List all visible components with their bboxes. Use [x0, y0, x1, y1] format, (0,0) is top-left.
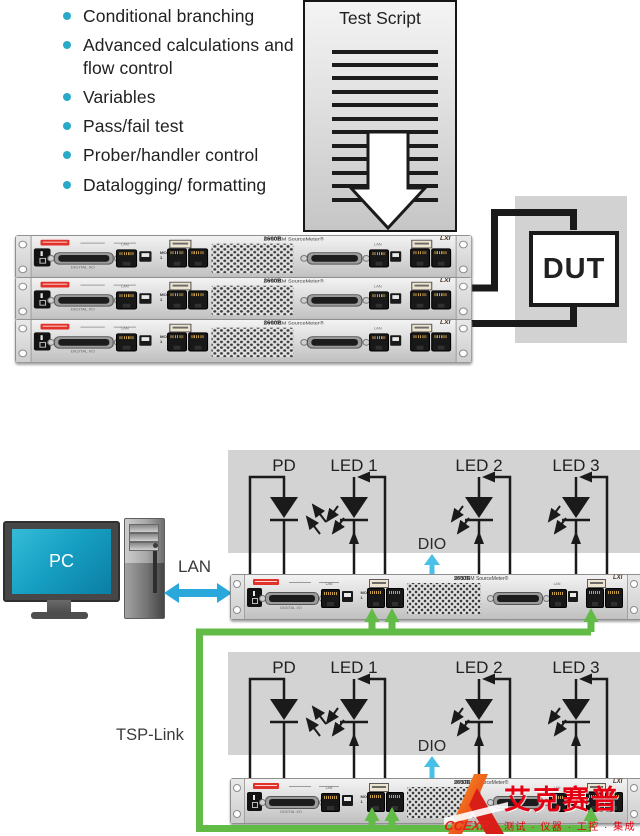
usb-a-port [169, 324, 191, 333]
warning-sticker [41, 240, 70, 246]
usb-a-port [411, 282, 432, 291]
svg-text:CCEXP: CCEXP [444, 818, 491, 833]
tsp-link-port-2 [188, 248, 208, 267]
rack-ear-right [456, 236, 472, 278]
ventilation-grid [211, 244, 293, 274]
digital-io-label: DIGITAL I/O [49, 307, 116, 312]
lan-port-label: LAN [367, 327, 389, 331]
watermark-text: 艾克赛普 测试 · 仪器 · 工控 · 集成 www.accexp.net [504, 778, 640, 836]
dut-box: DUT [529, 231, 619, 307]
usb-b-port [390, 251, 401, 262]
screw-hole [18, 283, 27, 291]
warning-sticker [41, 282, 70, 288]
tsp-link-port-4 [431, 290, 451, 309]
digital-io-connector [54, 252, 114, 264]
panel-microtext [80, 243, 104, 244]
watermark-tagline: 测试 · 仪器 · 工控 · 集成 [504, 818, 640, 833]
lan-port-label: LAN [114, 243, 136, 247]
screw-hole [459, 325, 468, 333]
usb-b-port [139, 251, 151, 262]
ventilation-grid [211, 328, 293, 358]
lan-port [369, 249, 389, 267]
usb-b-port [139, 335, 151, 346]
tsp-link-label: TSP-Link [116, 726, 184, 745]
lan-port-label: LAN [114, 327, 136, 331]
lan-port [116, 333, 137, 351]
lan-port [369, 291, 389, 309]
lxi-logo: LXI [440, 320, 450, 326]
rack-ear-right [456, 278, 472, 320]
digital-io-connector [54, 294, 114, 306]
rack-ear-left [16, 236, 32, 278]
screw-hole [459, 283, 468, 291]
accexp-logo-icon: CCEXP [444, 772, 510, 834]
mod-number: 1 [160, 339, 162, 344]
tsp-link-port-1 [167, 248, 187, 267]
rack-ear-left [16, 320, 32, 362]
sourcemeter-front-panel: DIGITAL I/O LAN MOD 1 2600B SYSTEM Sourc… [15, 235, 472, 279]
screw-hole [18, 266, 27, 274]
screw-hole [18, 325, 27, 333]
usb-a-port [411, 240, 432, 249]
rack-unit-1: DIGITAL I/O LAN MOD 1 2600B SYSTEM Sourc… [15, 235, 470, 277]
tsp-link-port-3 [410, 290, 430, 309]
usb-a-port [169, 282, 191, 291]
tsp-link-port-2 [188, 290, 208, 309]
lan-port [116, 291, 137, 309]
warning-sticker [41, 324, 70, 330]
lan-port-label: LAN [367, 243, 389, 247]
digital-io-connector [307, 294, 362, 306]
digital-io-connector [307, 336, 362, 348]
tsp-link-port-1 [167, 332, 187, 351]
screw-hole [18, 308, 27, 316]
tsp-link-port-4 [431, 332, 451, 351]
sourcemeter-front-panel: DIGITAL I/O LAN MOD 1 2600B SYSTEM Sourc… [15, 277, 472, 321]
digital-io-label: DIGITAL I/O [49, 265, 116, 270]
rack-ear-right [456, 320, 472, 362]
rack-unit-3: DIGITAL I/O LAN MOD 1 2600B SYSTEM Sourc… [15, 319, 470, 361]
usb-a-port [169, 240, 191, 249]
usb-b-port [390, 335, 401, 346]
screw-hole [459, 308, 468, 316]
mod-number: 1 [160, 297, 162, 302]
tsp-link-port-1 [167, 290, 187, 309]
tsp-link-port-3 [410, 332, 430, 351]
ventilation-grid [211, 286, 293, 316]
dut-label: DUT [543, 253, 606, 286]
tsp-script-and-tsp-link-diagram: Conditional branching Advanced calculati… [0, 0, 640, 836]
digital-io-connector [54, 336, 114, 348]
mod-number: 1 [160, 255, 162, 260]
watermark: CCEXP 艾克赛普 测试 · 仪器 · 工控 · 集成 www.accexp.… [444, 768, 640, 836]
usb-a-port [411, 324, 432, 333]
screw-hole [18, 350, 27, 358]
digital-io-connector [307, 252, 362, 264]
lan-port [369, 333, 389, 351]
panel-microtext [80, 285, 104, 286]
rack-ear-left [16, 278, 32, 320]
lan-port-label: LAN [367, 285, 389, 289]
watermark-brand: 艾克赛普 [504, 778, 640, 817]
lxi-logo: LXI [440, 236, 450, 242]
sourcemeter-front-panel: DIGITAL I/O LAN MOD 1 2600B SYSTEM Sourc… [15, 319, 472, 363]
lan-port-label: LAN [114, 285, 136, 289]
usb-b-port [390, 293, 401, 304]
tsp-link-port-3 [410, 248, 430, 267]
usb-b-port [139, 293, 151, 304]
screw-hole [18, 241, 27, 249]
lan-port [116, 249, 137, 267]
tsp-link-port-2 [188, 332, 208, 351]
tsp-link-port-4 [431, 248, 451, 267]
digital-io-label: DIGITAL I/O [49, 349, 116, 354]
screw-hole [459, 350, 468, 358]
screw-hole [459, 241, 468, 249]
rack-unit-2: DIGITAL I/O LAN MOD 1 2600B SYSTEM Sourc… [15, 277, 470, 319]
panel-microtext [80, 327, 104, 328]
screw-hole [459, 266, 468, 274]
lxi-logo: LXI [440, 278, 450, 284]
